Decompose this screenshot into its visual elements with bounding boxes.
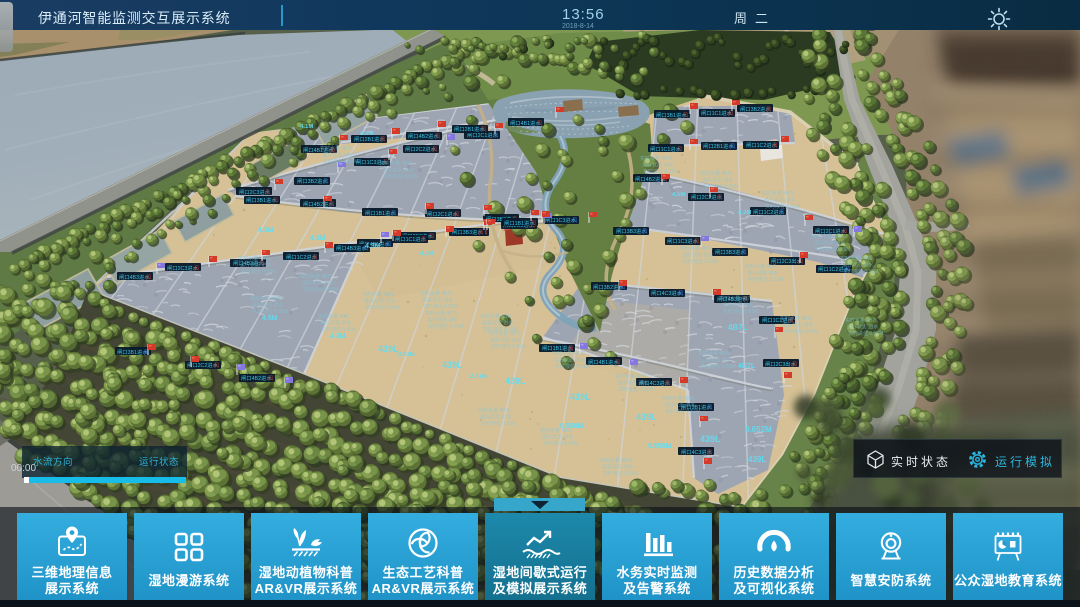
svg-text:2.41M: 2.41M: [470, 374, 487, 380]
svg-text:运行状态 进水: 运行状态 进水: [382, 167, 413, 174]
svg-text:风: 风: [478, 229, 484, 236]
svg-text:实时水量 4B7L: 实时水量 4B7L: [662, 395, 695, 402]
svg-text:运行状态 进水: 运行状态 进水: [764, 197, 795, 204]
svg-text:实时液位 0.55M: 实时液位 0.55M: [481, 420, 516, 427]
svg-text:实时水量 4B7L: 实时水量 4B7L: [698, 350, 731, 357]
svg-text:风: 风: [329, 201, 335, 208]
svg-text:运行状态 进水: 运行状态 进水: [602, 464, 633, 471]
svg-text:运行状态 进水: 运行状态 进水: [617, 380, 648, 387]
svg-text:实时水量 4B7L: 实时水量 4B7L: [318, 313, 351, 320]
svg-text:风: 风: [707, 404, 713, 411]
svg-text:风: 风: [144, 349, 150, 356]
svg-text:实时液位 0.55M: 实时液位 0.55M: [603, 470, 638, 477]
svg-text:运行状态 进水: 运行状态 进水: [642, 162, 673, 169]
svg-text:0.550M: 0.550M: [648, 443, 672, 450]
svg-text:运行状态 进水: 运行状态 进水: [847, 324, 878, 331]
svg-text:实时水量 4B7L: 实时水量 4B7L: [600, 457, 633, 464]
svg-text:439L: 439L: [570, 392, 591, 402]
svg-text:4.3M: 4.3M: [258, 227, 274, 234]
svg-text:运行状态 进水: 运行状态 进水: [482, 320, 513, 327]
svg-text:风: 风: [493, 132, 499, 139]
svg-text:实时液位 0.55M: 实时液位 0.55M: [303, 286, 338, 293]
svg-text:实时水量 4B7L: 实时水量 4B7L: [762, 190, 795, 197]
svg-text:风: 风: [273, 197, 279, 204]
svg-text:风: 风: [268, 375, 274, 382]
svg-text:实时液位 0.55M: 实时液位 0.55M: [241, 268, 276, 275]
svg-text:运行状态 进水: 运行状态 进水: [252, 302, 283, 309]
svg-text:4.3M: 4.3M: [310, 235, 326, 242]
svg-text:439L: 439L: [378, 344, 399, 354]
svg-text:实时水量 4B7L: 实时水量 4B7L: [362, 291, 395, 298]
svg-text:风: 风: [642, 228, 648, 235]
svg-text:运行状态 进水: 运行状态 进水: [302, 280, 333, 287]
svg-text:风: 风: [798, 258, 804, 265]
svg-text:风: 风: [615, 359, 621, 366]
svg-text:实时水量 4B7L: 实时水量 4B7L: [480, 313, 513, 320]
svg-text:实时液位 0.55M: 实时液位 0.55M: [783, 328, 818, 335]
svg-text:实时液位 0.55M: 实时液位 0.55M: [555, 363, 590, 370]
svg-text:风: 风: [730, 143, 736, 150]
svg-text:运行状态 进水: 运行状态 进水: [682, 252, 713, 259]
svg-text:运行状态 进水: 运行状态 进水: [542, 434, 573, 441]
svg-text:实时水量 4B7L: 实时水量 4B7L: [488, 330, 521, 337]
svg-text:实时液位 0.55M: 实时液位 0.55M: [843, 268, 878, 275]
svg-text:439L: 439L: [748, 455, 766, 464]
svg-text:运行状态 进水: 运行状态 进水: [554, 357, 585, 364]
svg-text:439L: 439L: [700, 434, 721, 444]
svg-text:实时液位 0.55M: 实时液位 0.55M: [618, 386, 653, 393]
svg-text:风: 风: [146, 274, 152, 281]
svg-text:运行状态 进水: 运行状态 进水: [722, 302, 753, 309]
svg-text:运行状态 进水: 运行状态 进水: [782, 322, 813, 329]
svg-text:实时液位 0.55M: 实时液位 0.55M: [748, 276, 783, 283]
svg-text:风: 风: [707, 449, 713, 456]
svg-text:风: 风: [531, 220, 537, 227]
svg-text:运行状态 进水: 运行状态 进水: [814, 240, 845, 247]
svg-text:风: 风: [772, 142, 778, 149]
svg-text:实时液位 0.55M: 实时液位 0.55M: [703, 183, 738, 190]
svg-text:实时液位 0.55M: 实时液位 0.55M: [723, 308, 758, 315]
svg-text:风: 风: [792, 361, 798, 368]
svg-text:实时水量 4B7L: 实时水量 4B7L: [700, 170, 733, 177]
svg-text:风: 风: [265, 189, 271, 196]
svg-text:运行状态 进水: 运行状态 进水: [842, 262, 873, 269]
svg-text:风: 风: [214, 362, 220, 369]
svg-text:实时水量 4B7L: 实时水量 4B7L: [320, 145, 353, 152]
svg-text:4.3M: 4.3M: [330, 333, 346, 340]
svg-text:风: 风: [683, 112, 689, 119]
svg-text:风: 风: [741, 249, 747, 256]
svg-text:实时液位 0.55M: 实时液位 0.55M: [765, 203, 800, 210]
svg-text:运行状态 进水: 运行状态 进水: [322, 152, 353, 159]
svg-text:风: 风: [323, 178, 329, 185]
svg-text:风: 风: [194, 265, 200, 272]
svg-text:实时水量 4B7L: 实时水量 4B7L: [238, 255, 271, 262]
svg-text:实时液位 0.55M: 实时液位 0.55M: [321, 326, 356, 333]
svg-text:风: 风: [677, 146, 683, 153]
svg-text:4.3M: 4.3M: [360, 131, 373, 137]
svg-text:实时液位 0.55M: 实时液位 0.55M: [665, 408, 700, 415]
svg-text:运行状态 进水: 运行状态 进水: [702, 177, 733, 184]
svg-text:0.652M: 0.652M: [745, 425, 772, 434]
svg-text:4.5M: 4.5M: [262, 315, 278, 322]
svg-text:实时液位 0.55M: 实时液位 0.55M: [323, 158, 358, 165]
svg-text:实时水量 4B7L: 实时水量 4B7L: [680, 245, 713, 252]
svg-text:风: 风: [312, 254, 318, 261]
svg-text:实时水量 4B7L: 实时水量 4B7L: [812, 233, 845, 240]
svg-text:实时液位 0.55M: 实时液位 0.55M: [643, 168, 678, 175]
svg-text:风: 风: [429, 233, 435, 240]
svg-text:风: 风: [454, 211, 460, 218]
svg-text:4B7L: 4B7L: [738, 363, 756, 370]
svg-text:风: 风: [766, 106, 772, 113]
svg-text:实时水量 4B7L: 实时水量 4B7L: [420, 290, 453, 297]
svg-text:4.3M: 4.3M: [365, 243, 381, 250]
svg-text:实时液位 0.55M: 实时液位 0.55M: [543, 440, 578, 447]
svg-text:实时水量 4B7L: 实时水量 4B7L: [478, 407, 511, 414]
svg-text:风: 风: [391, 210, 397, 217]
svg-text:实时水量 4B7L: 实时水量 4B7L: [425, 310, 458, 317]
svg-text:实时液位 0.55M: 实时液位 0.55M: [383, 173, 418, 180]
svg-text:风: 风: [728, 110, 734, 117]
svg-text:风: 风: [694, 238, 700, 245]
svg-text:风: 风: [435, 133, 441, 140]
svg-text:实时水量 4B7L: 实时水量 4B7L: [845, 317, 878, 324]
svg-text:实时水量 4B7L: 实时水量 4B7L: [552, 350, 585, 357]
svg-text:2.41M: 2.41M: [398, 352, 415, 358]
svg-text:风: 风: [678, 290, 684, 297]
svg-text:风: 风: [481, 126, 487, 133]
svg-text:风: 风: [665, 380, 671, 387]
svg-text:实时液位 0.55M: 实时液位 0.55M: [365, 304, 400, 311]
svg-text:风: 风: [432, 146, 438, 153]
svg-text:运行状态 进水: 运行状态 进水: [747, 270, 778, 277]
svg-text:实时水量 4B7L: 实时水量 4B7L: [540, 427, 573, 434]
svg-text:实时水量 4B7L: 实时水量 4B7L: [745, 263, 778, 270]
svg-text:实时水量 4B7L: 实时水量 4B7L: [300, 273, 333, 280]
svg-text:运行状态 进水: 运行状态 进水: [427, 317, 458, 324]
svg-text:运行状态 进水: 运行状态 进水: [240, 262, 271, 269]
svg-text:风: 风: [779, 209, 785, 216]
svg-text:4.1M: 4.1M: [300, 124, 313, 130]
svg-text:运行状态 进水: 运行状态 进水: [480, 414, 511, 421]
svg-text:4.3M: 4.3M: [420, 251, 433, 257]
svg-text:风: 风: [717, 194, 723, 201]
svg-text:风: 风: [421, 236, 427, 243]
svg-text:实时液位 0.55M: 实时液位 0.55M: [701, 363, 736, 370]
svg-text:实时水量 4B7L: 实时水量 4B7L: [615, 373, 648, 380]
svg-text:风: 风: [380, 136, 386, 143]
svg-text:运行状态 进水: 运行状态 进水: [700, 357, 731, 364]
svg-text:实时液位 0.55M: 实时液位 0.55M: [423, 303, 458, 310]
svg-text:运行状态 进水: 运行状态 进水: [664, 402, 695, 409]
svg-text:运行状态 进水: 运行状态 进水: [364, 298, 395, 305]
svg-text:实时液位 0.55M: 实时液位 0.55M: [848, 330, 883, 337]
svg-text:风: 风: [572, 217, 578, 224]
svg-text:实时液位 0.55M: 实时液位 0.55M: [683, 258, 718, 265]
svg-text:风: 风: [537, 120, 543, 127]
svg-text:实时水量 4B7L: 实时水量 4B7L: [720, 295, 753, 302]
svg-text:实时水量 4B7L: 实时水量 4B7L: [380, 160, 413, 167]
svg-text:实时液位 0.55M: 实时液位 0.55M: [491, 343, 526, 350]
svg-text:实时液位 0.55M: 实时液位 0.55M: [815, 246, 850, 253]
svg-text:风: 风: [386, 241, 392, 248]
svg-text:实时水量 4B7L: 实时水量 4B7L: [840, 255, 873, 262]
svg-text:运行状态 进水: 运行状态 进水: [490, 337, 521, 344]
svg-text:运行状态 进水: 运行状态 进水: [422, 297, 453, 304]
svg-text:4B7L: 4B7L: [728, 323, 748, 332]
svg-text:实时液位 0.55M: 实时液位 0.55M: [428, 323, 463, 330]
svg-text:439L: 439L: [505, 376, 526, 386]
svg-text:实时液位 0.55M: 实时液位 0.55M: [253, 308, 288, 315]
svg-text:439L: 439L: [442, 360, 463, 370]
svg-text:实时水量 4B7L: 实时水量 4B7L: [780, 315, 813, 322]
svg-text:4.3M: 4.3M: [738, 210, 751, 216]
svg-text:实时水量 4B7L: 实时水量 4B7L: [640, 155, 673, 162]
svg-text:4.5M: 4.5M: [672, 192, 685, 198]
svg-text:实时水量 4B7L: 实时水量 4B7L: [250, 295, 283, 302]
svg-text:439L: 439L: [636, 412, 657, 422]
svg-text:运行状态 进水: 运行状态 进水: [320, 320, 351, 327]
